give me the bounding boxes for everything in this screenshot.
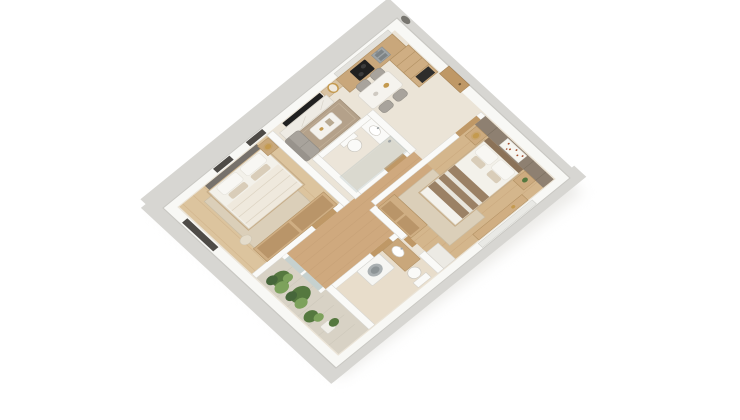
floorplan-render: 3D isometric cutaway render of a two-bed… <box>0 0 740 420</box>
iso-plan: Kitchen Dining area <box>136 0 587 384</box>
floorplan-svg: 3D isometric cutaway render of a two-bed… <box>0 0 740 420</box>
